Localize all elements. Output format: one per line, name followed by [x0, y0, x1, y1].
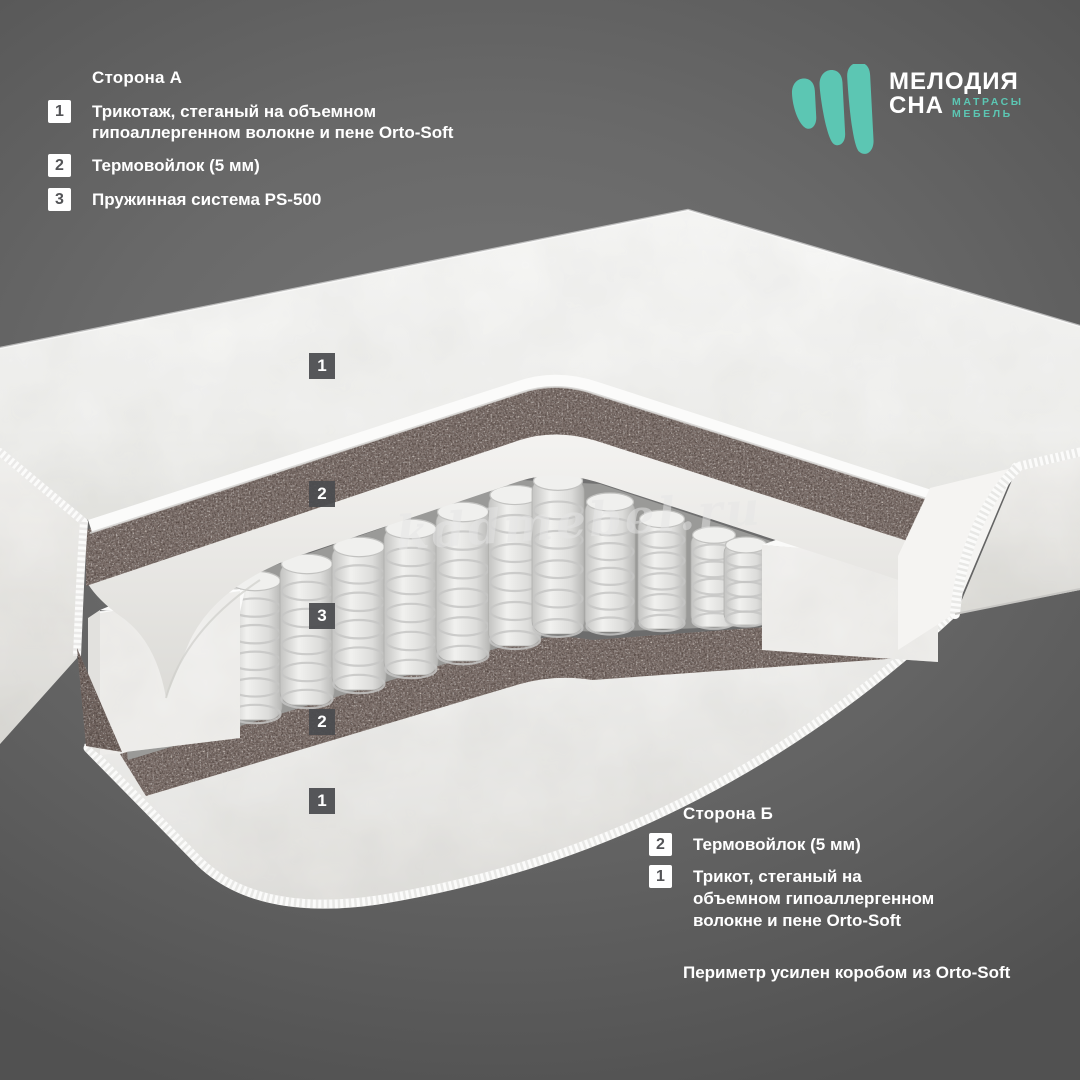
side-b-item-2: 1 Трикот, стеганый на объемном гипоаллер… — [649, 865, 1029, 932]
side-a-item-3-badge: 3 — [48, 188, 71, 211]
brand-name-bottom: СНА — [889, 94, 944, 118]
brand-logo-text: МЕЛОДИЯ СНА МАТРАСЫ МЕБЕЛЬ — [889, 70, 1024, 120]
legend-side-b: Сторона Б 2 Термовойлок (5 мм) 1 Трикот,… — [649, 804, 1029, 941]
marker-layer-2-lower: 2 — [309, 709, 335, 735]
brand-tagline-line1: МАТРАСЫ — [952, 96, 1024, 108]
side-b-item-1-badge: 2 — [649, 833, 672, 856]
side-a-item-1-label: Трикотаж, стеганый на объемном гипоаллер… — [92, 100, 468, 143]
marker-layer-1-top: 1 — [309, 353, 335, 379]
side-b-item-2-label: Трикот, стеганый на объемном гипоаллерге… — [693, 865, 943, 932]
side-b-item-1: 2 Термовойлок (5 мм) — [649, 833, 1029, 856]
side-a-item-2-label: Термовойлок (5 мм) — [92, 154, 468, 176]
side-a-title: Сторона А — [92, 68, 468, 88]
side-a-item-1: 1 Трикотаж, стеганый на объемном гипоалл… — [48, 100, 468, 143]
legend-side-a: Сторона А 1 Трикотаж, стеганый на объемн… — [48, 68, 468, 222]
side-a-item-2-badge: 2 — [48, 154, 71, 177]
side-b-item-1-label: Термовойлок (5 мм) — [693, 833, 943, 856]
side-b-title: Сторона Б — [683, 804, 1029, 824]
side-a-item-3: 3 Пружинная система PS-500 — [48, 188, 468, 211]
perimeter-note: Периметр усилен коробом из Orto-Soft — [683, 963, 1010, 983]
marker-layer-1-bottom: 1 — [309, 788, 335, 814]
brand-tagline: МАТРАСЫ МЕБЕЛЬ — [952, 96, 1024, 120]
infographic-canvas: kddmebel.ru 1 2 3 2 1 МЕЛОДИЯ СНА МАТРАС… — [0, 0, 1080, 1080]
brand-name-top: МЕЛОДИЯ — [889, 70, 1024, 94]
side-a-item-2: 2 Термовойлок (5 мм) — [48, 154, 468, 177]
brand-tagline-line2: МЕБЕЛЬ — [952, 108, 1024, 120]
side-a-item-1-badge: 1 — [48, 100, 71, 123]
melody-sna-logo-icon — [789, 64, 875, 160]
side-a-item-3-label: Пружинная система PS-500 — [92, 188, 468, 210]
marker-layer-3-springs: 3 — [309, 603, 335, 629]
marker-layer-2-upper: 2 — [309, 481, 335, 507]
side-b-item-2-badge: 1 — [649, 865, 672, 888]
brand-logo: МЕЛОДИЯ СНА МАТРАСЫ МЕБЕЛЬ — [789, 64, 1024, 160]
